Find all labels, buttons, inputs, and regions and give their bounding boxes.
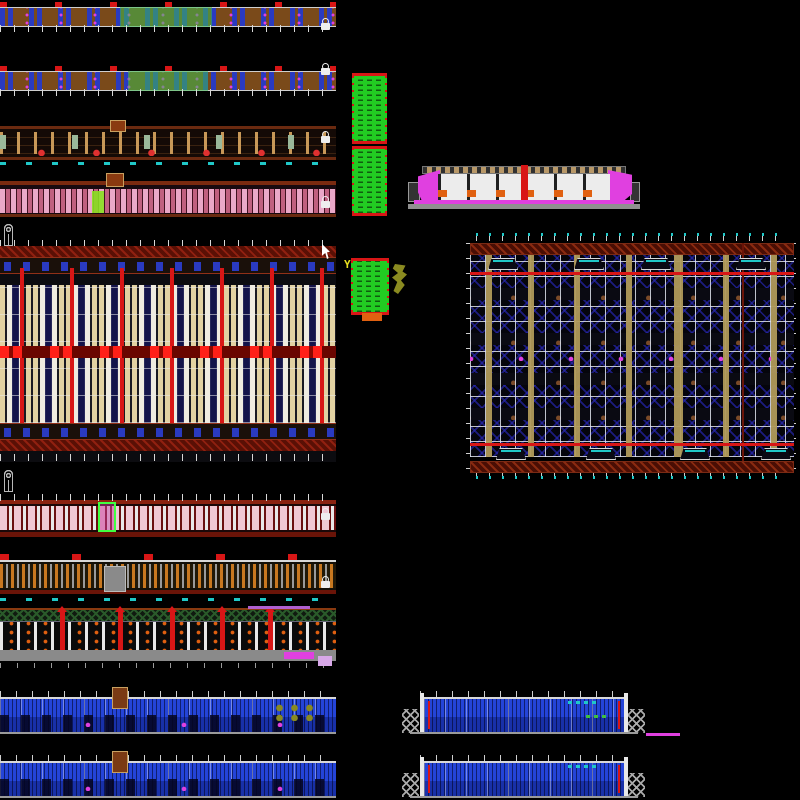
hook-symbols-row-2: [4, 470, 332, 494]
center-tower: [104, 566, 126, 592]
grid-ticks: [0, 494, 336, 501]
magenta-equipment: [284, 652, 314, 659]
elevation-strip-1[interactable]: [0, 126, 336, 160]
grid-ticks: [0, 89, 336, 96]
green-zone: [128, 71, 208, 91]
magenta-cross-section[interactable]: [408, 158, 640, 210]
x-brace-right: [628, 709, 645, 733]
roof-vent: [488, 258, 518, 270]
red-eave-line-top: [470, 272, 794, 275]
pink-colonnade: [0, 189, 336, 213]
end-post-left: [420, 757, 424, 797]
purlin-row: [470, 408, 794, 420]
center-tower: [106, 173, 124, 187]
hatched-columns: [0, 564, 336, 588]
center-tower: [112, 687, 128, 709]
top-wall-band: [0, 246, 336, 257]
center-tower: [112, 751, 128, 773]
red-downspout: [268, 610, 273, 650]
green-schedule-table-3[interactable]: [351, 258, 389, 315]
lock-symbol-icon: [321, 63, 330, 75]
lock-symbol-icon: [321, 131, 330, 143]
roof-framing-plan-right[interactable]: [466, 233, 796, 479]
end-post-left: [420, 693, 424, 733]
ground-line: [0, 732, 336, 734]
bottom-wall-band: [0, 440, 336, 451]
annotation-dashes: [568, 765, 598, 768]
blue-elevation-left-2[interactable]: [0, 755, 336, 800]
red-edge-mark: [428, 701, 430, 729]
ground-slab: [408, 204, 640, 209]
red-edge-mark: [618, 701, 620, 729]
roof-vent: [496, 448, 526, 460]
plan-strip-1[interactable]: [0, 2, 336, 32]
red-base-dots: [0, 148, 336, 156]
bottom-wall-hatch: [470, 461, 794, 473]
red-roof-markers: [0, 554, 336, 560]
detail-marker-glyph: [392, 264, 407, 294]
purlin-row: [470, 373, 794, 385]
magenta-end-left: [418, 170, 440, 202]
grid-ticks-top: [476, 233, 788, 241]
ground-line: [410, 796, 638, 798]
lock-symbol-icon: [321, 196, 330, 208]
top-wall-hatch: [470, 243, 794, 255]
expansion-joint-line: [742, 243, 744, 469]
green-schedule-table-2[interactable]: [352, 146, 387, 216]
x-brace-left: [402, 709, 419, 733]
magenta-markers: [0, 783, 336, 791]
grid-ticks: [0, 25, 336, 32]
grid-ticks: [0, 454, 336, 461]
annotation-dashes: [586, 715, 608, 718]
section-strip[interactable]: [0, 606, 336, 668]
anchor-hook-icon: [4, 470, 13, 492]
elevation-strip-2[interactable]: [0, 181, 336, 217]
annotation-dashes: [568, 701, 598, 704]
table-marker-label: Y: [344, 258, 354, 270]
blue-elevation-left-1[interactable]: [0, 691, 336, 738]
red-edge-mark: [428, 765, 430, 793]
plan-strip-2[interactable]: [0, 66, 336, 96]
roof-vent: [574, 258, 604, 270]
grid-ticks: [0, 663, 336, 668]
blue-elevation-right-1[interactable]: [406, 691, 642, 738]
big-floor-plan-left[interactable]: [0, 246, 336, 462]
main-girder: [626, 255, 632, 457]
elevation-strip-4[interactable]: [0, 560, 336, 594]
central-red-girder: [0, 346, 336, 358]
main-girder: [574, 255, 580, 457]
highlight-element: [92, 191, 104, 213]
entourage-figures: [0, 135, 336, 149]
table-footer-block: [362, 313, 382, 321]
red-edge-mark: [618, 765, 620, 793]
equipment-marks: [272, 703, 318, 721]
magenta-end-right: [608, 170, 632, 202]
x-brace-left: [402, 773, 419, 797]
blue-elevation-right-2[interactable]: [406, 755, 642, 800]
roof-vent: [680, 448, 710, 460]
purlin-row: [470, 288, 794, 300]
roof-vent: [761, 448, 791, 460]
dimension-dashes: [0, 598, 336, 601]
lock-symbol-icon: [321, 18, 330, 30]
main-girder-double: [674, 255, 683, 457]
bottom-bay-row: [0, 423, 336, 440]
green-schedule-table-1[interactable]: [352, 73, 387, 144]
purple-rail: [248, 606, 310, 609]
red-eave-line-bottom: [470, 443, 794, 446]
main-girder: [723, 255, 729, 457]
ground-line: [0, 796, 336, 798]
red-downspout: [60, 610, 65, 650]
dimension-dashes: [0, 162, 336, 165]
magenta-node-markers: [470, 353, 794, 361]
cad-model-space[interactable]: Y: [0, 0, 800, 800]
green-zone: [120, 7, 212, 27]
ground-line: [410, 732, 638, 734]
x-brace-right: [628, 773, 645, 797]
roof-vent: [586, 448, 616, 460]
lock-symbol-icon: [321, 508, 330, 520]
roof-vent: [736, 258, 766, 270]
center-tower: [110, 120, 126, 132]
magenta-datum: [646, 733, 680, 736]
red-downspout: [220, 610, 225, 650]
base-rail: [0, 214, 336, 217]
column-row: [0, 622, 336, 650]
roof-vent: [641, 258, 671, 270]
elevation-strip-3[interactable]: [0, 500, 336, 537]
purlin-row: [470, 333, 794, 345]
magenta-equipment: [318, 656, 332, 666]
selection-highlight-box: [98, 502, 116, 532]
center-red-column: [521, 165, 528, 202]
main-girder: [528, 255, 534, 457]
lock-symbol-icon: [321, 576, 330, 588]
main-girder: [486, 255, 492, 457]
red-downspout: [170, 610, 175, 650]
arched-colonnade: [0, 506, 336, 530]
main-girder: [771, 255, 777, 457]
